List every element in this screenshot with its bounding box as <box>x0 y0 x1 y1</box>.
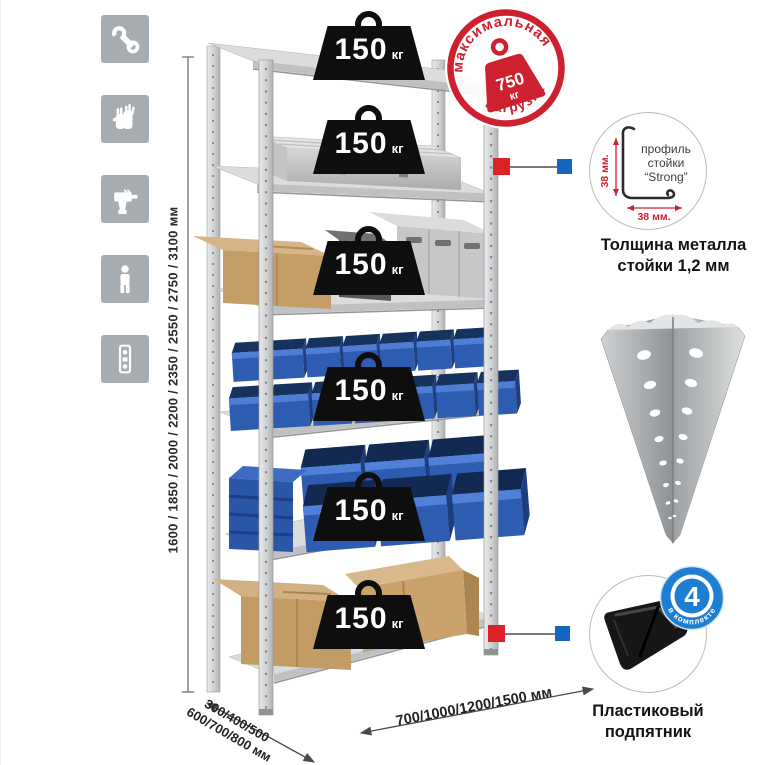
load-value: 150 <box>335 376 388 406</box>
corner-post-image <box>601 315 745 543</box>
callout-red-marker-top <box>493 158 510 175</box>
quantity-badge: 4 в комплекте <box>659 565 725 631</box>
load-unit: кг <box>392 616 404 631</box>
load-value: 150 <box>335 496 388 526</box>
foot-caption: Пластиковый подпятник <box>573 701 723 744</box>
callout-blue-marker-bottom <box>555 626 570 641</box>
profile-label-3: “Strong” <box>644 170 687 184</box>
shelf2-load-weight: 150кг <box>313 120 425 174</box>
profile-caption: Толщина металла стойки 1,2 мм <box>576 235 765 278</box>
wrench-icon <box>101 15 149 63</box>
profile-label-2: стойки <box>648 156 685 170</box>
callout-blue-marker-top <box>557 159 572 174</box>
load-unit: кг <box>392 141 404 156</box>
post-profile-detail-circle: 38 мм. 38 мм. профиль стойки “Strong” <box>589 112 707 230</box>
person-icon <box>101 255 149 303</box>
load-unit: кг <box>392 262 404 277</box>
load-value: 150 <box>335 35 388 65</box>
profile-dim-vertical: 38 мм. <box>599 154 611 187</box>
gloves-icon <box>101 95 149 143</box>
load-value: 150 <box>335 604 388 634</box>
callout-red-marker-bottom <box>488 625 505 642</box>
load-unit: кг <box>392 47 404 62</box>
shelf1-load-weight: 150кг <box>313 26 425 80</box>
product-infographic: максимальная нагрузка 750 кг <box>0 0 765 765</box>
level-icon <box>101 335 149 383</box>
shelf4-load-weight: 150кг <box>313 367 425 421</box>
profile-label-1: профиль <box>641 142 691 156</box>
load-value: 150 <box>335 250 388 280</box>
shelf3-load-weight: 150кг <box>313 241 425 295</box>
load-unit: кг <box>392 508 404 523</box>
load-value: 150 <box>335 129 388 159</box>
height-dimensions-label: 1600 / 1850 / 2000 / 2200 / 2350 / 2550 … <box>166 198 186 563</box>
drill-icon <box>101 175 149 223</box>
max-load-stamp: максимальная нагрузка 750 кг <box>430 0 582 144</box>
badge-number: 4 <box>684 581 700 612</box>
shelf6-load-weight: 150кг <box>313 595 425 649</box>
profile-dim-horizontal: 38 мм. <box>637 211 670 223</box>
shelf5-load-weight: 150кг <box>313 487 425 541</box>
load-unit: кг <box>392 388 404 403</box>
